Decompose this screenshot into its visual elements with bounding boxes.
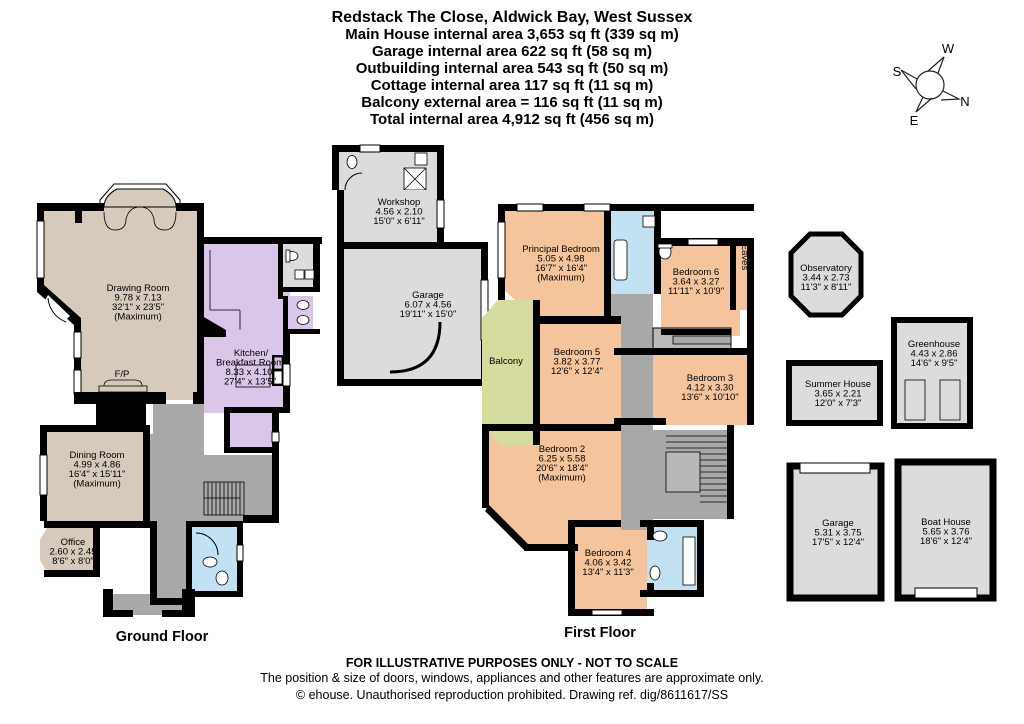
svg-text:Cottage internal area 117 sq f: Cottage internal area 117 sq ft (11 sq m… [371, 77, 654, 94]
svg-text:Balcony: Balcony [489, 356, 523, 367]
svg-text:Outbuilding internal area 543: Outbuilding internal area 543 sq ft (50 … [356, 60, 669, 77]
svg-text:12'6" x 12'4": 12'6" x 12'4" [551, 366, 603, 377]
svg-text:18'6" x 12'4": 18'6" x 12'4" [920, 536, 972, 547]
svg-text:E: E [910, 113, 919, 128]
svg-text:11'3" x 8'11": 11'3" x 8'11" [801, 282, 852, 293]
svg-text:8'6" x 8'0": 8'6" x 8'0" [52, 556, 94, 567]
svg-text:27'4" x 13'5": 27'4" x 13'5" [224, 377, 276, 388]
svg-text:W: W [942, 41, 955, 56]
svg-text:Balcony external area = 116 sq: Balcony external area = 116 sq ft (11 sq… [361, 94, 662, 111]
svg-text:Garage internal area 622 sq ft: Garage internal area 622 sq ft (58 sq m) [372, 43, 652, 60]
svg-text:(Maximum): (Maximum) [538, 473, 586, 484]
svg-text:12'0" x 7'3": 12'0" x 7'3" [815, 398, 862, 409]
svg-text:(Maximum): (Maximum) [537, 273, 585, 284]
svg-text:Main House internal area 3,653: Main House internal area 3,653 sq ft (33… [345, 26, 678, 43]
svg-text:(Maximum): (Maximum) [114, 312, 162, 323]
svg-text:17'5" x 12'4": 17'5" x 12'4" [812, 537, 864, 548]
svg-text:FOR ILLUSTRATIVE PURPOSES ONLY: FOR ILLUSTRATIVE PURPOSES ONLY - NOT TO … [346, 656, 678, 670]
svg-text:19'11" x 15'0": 19'11" x 15'0" [400, 309, 457, 320]
svg-text:15'0" x 6'11": 15'0" x 6'11" [373, 216, 424, 227]
svg-text:13'6" x 10'10": 13'6" x 10'10" [681, 392, 738, 403]
svg-text:Total internal area 4,912 sq f: Total internal area 4,912 sq ft (456 sq … [370, 111, 654, 128]
svg-text:Eaves: Eaves [739, 244, 750, 271]
svg-text:(Maximum): (Maximum) [73, 479, 121, 490]
svg-text:11'11" x 10'9": 11'11" x 10'9" [668, 286, 724, 297]
svg-text:F/P: F/P [115, 369, 130, 380]
svg-text:13'4" x 11'3": 13'4" x 11'3" [582, 567, 633, 578]
svg-text:© ehouse. Unauthorised reprodu: © ehouse. Unauthorised reproduction proh… [296, 688, 728, 702]
svg-text:Ground Floor: Ground Floor [116, 629, 209, 645]
svg-text:Redstack The Close, Aldwick Ba: Redstack The Close, Aldwick Bay, West Su… [332, 9, 693, 26]
svg-text:14'6" x 9'5": 14'6" x 9'5" [911, 358, 958, 369]
svg-text:N: N [960, 94, 969, 109]
svg-text:First Floor: First Floor [564, 625, 636, 641]
svg-text:S: S [893, 64, 902, 79]
svg-text:The position & size of doors,: The position & size of doors, windows, a… [260, 671, 764, 685]
